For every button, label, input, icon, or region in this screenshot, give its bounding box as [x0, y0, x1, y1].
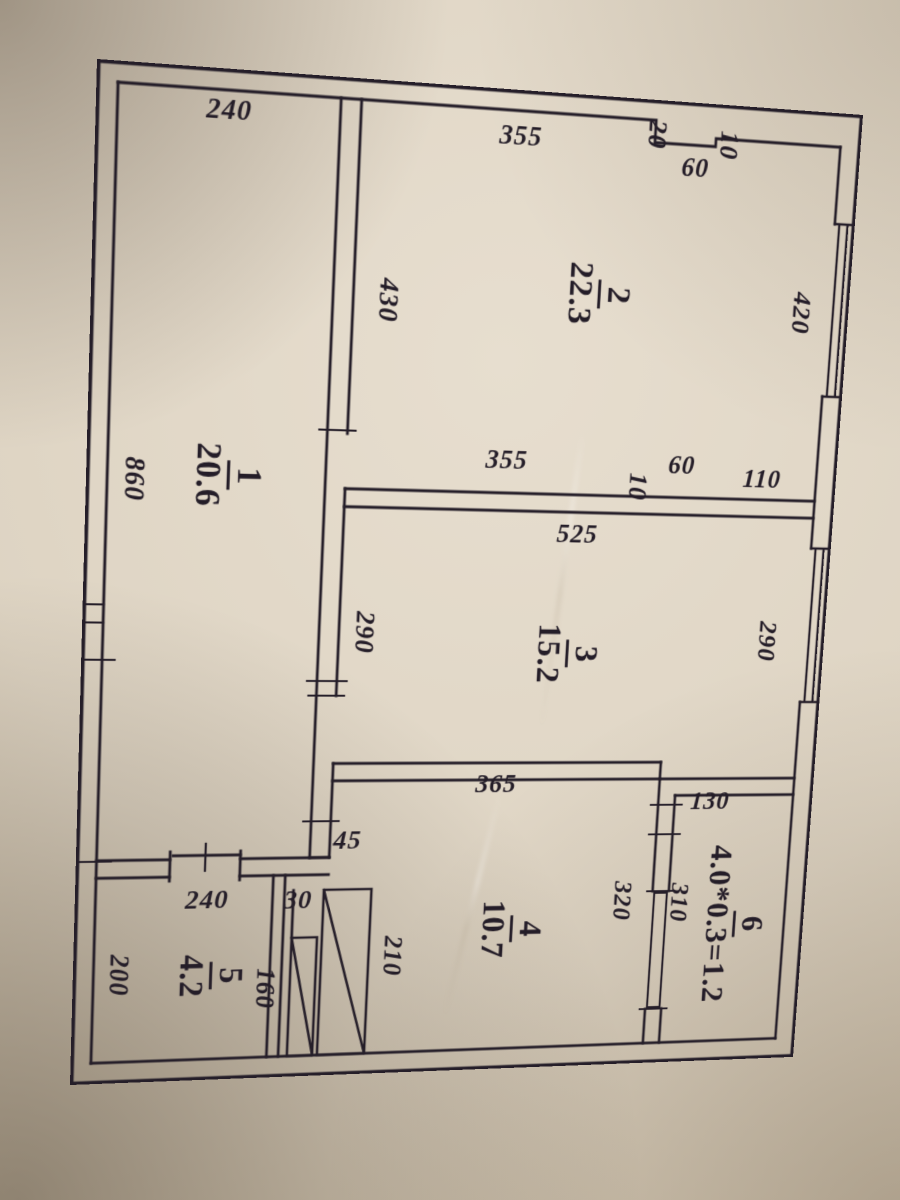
room-label-2: 2 22.3 — [560, 261, 636, 328]
room-number: 5 — [209, 961, 247, 990]
room-label-6: 6 4.0*0.3=1.2 — [694, 844, 772, 1003]
dim-label: 420 — [785, 291, 816, 335]
dim-label: 160 — [249, 968, 281, 1010]
room-label-5: 5 4.2 — [171, 953, 248, 998]
dim-label: 130 — [689, 786, 730, 815]
room-number: 2 — [597, 280, 635, 311]
door-marks — [200, 426, 704, 1023]
room-label-4: 4 10.7 — [473, 899, 547, 959]
dim-label: 60 — [681, 151, 710, 184]
dim-label: 20 — [642, 119, 673, 150]
dim-label: 10 — [622, 472, 653, 501]
room-number: 3 — [565, 640, 602, 668]
dim-label: 200 — [102, 954, 135, 997]
dim-label: 30 — [283, 885, 313, 915]
dim-label: 210 — [377, 935, 409, 976]
ventilation-shaft-large — [317, 889, 372, 1055]
ventilation-shaft-small — [287, 937, 317, 1056]
room-area: 15.2 — [528, 623, 567, 684]
room-number: 6 — [732, 910, 767, 937]
dim-label: 430 — [372, 277, 405, 323]
dim-label: 290 — [751, 621, 782, 662]
dim-label: 320 — [607, 881, 638, 921]
room-area: 4.2 — [171, 954, 211, 998]
dim-label: 525 — [556, 518, 599, 549]
dim-label: 10 — [713, 130, 744, 161]
room-area: 22.3 — [560, 261, 600, 326]
room-area: 10.7 — [473, 900, 512, 960]
dim-label: 110 — [742, 463, 782, 494]
room-number: 1 — [227, 461, 267, 491]
room-number: 4 — [509, 915, 546, 943]
dim-label: 310 — [664, 882, 694, 922]
floorplan-photo-page: { "colors": { "paper": "#ded4c3", "ink":… — [0, 0, 900, 1200]
dim-label: 240 — [206, 91, 253, 127]
photo-background: 240 355 20 60 10 430 420 355 60 10 110 5… — [0, 0, 900, 1200]
room-area: 20.6 — [187, 442, 228, 508]
dim-label: 45 — [333, 825, 363, 855]
dim-label: 290 — [348, 611, 380, 654]
room-label-3: 3 15.2 — [528, 623, 603, 684]
dim-label: 860 — [118, 456, 152, 501]
dim-label: 240 — [185, 884, 230, 915]
floorplan-drawing: 240 355 20 60 10 430 420 355 60 10 110 5… — [70, 59, 863, 1085]
dim-label: 355 — [499, 118, 544, 153]
dim-label: 60 — [667, 449, 696, 480]
dim-label: 355 — [485, 444, 529, 476]
dim-label: 365 — [475, 769, 518, 799]
room-label-1: 1 20.6 — [187, 442, 267, 509]
